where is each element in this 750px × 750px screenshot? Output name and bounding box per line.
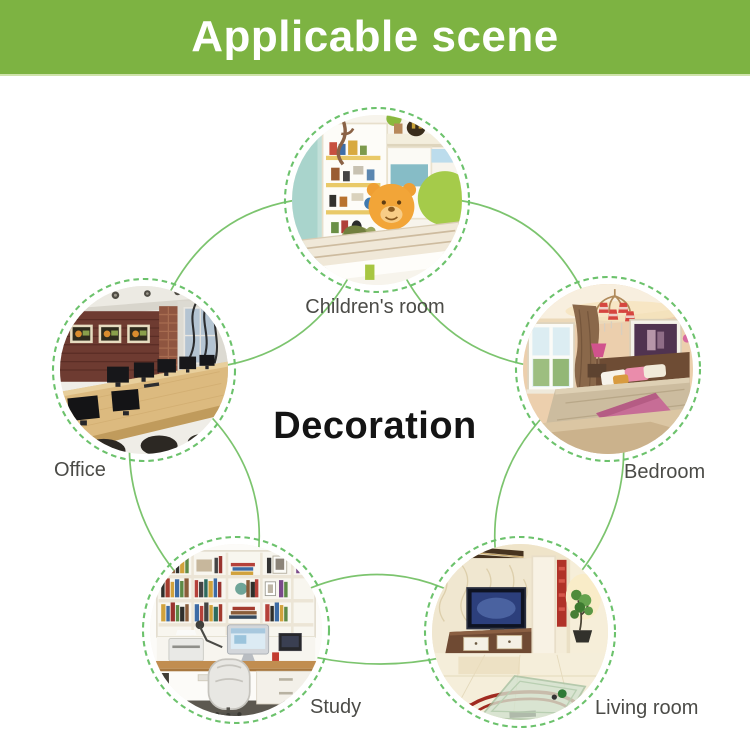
living-room-illustration (432, 544, 608, 720)
bedroom-illustration (523, 284, 693, 454)
childrens-room-photo (292, 115, 462, 285)
applicable-scene-page: Applicable scene (0, 0, 750, 750)
center-title: Decoration (273, 405, 476, 448)
study-photo (150, 544, 322, 716)
bedroom-label: Bedroom (624, 461, 705, 484)
living-room-photo (432, 544, 608, 720)
living-room-label: Living room (595, 697, 698, 720)
study-label: Study (310, 696, 361, 719)
study-illustration (150, 544, 322, 716)
bedroom-photo (523, 284, 693, 454)
office-illustration (60, 286, 228, 454)
office-label: Office (54, 459, 106, 482)
office-photo (60, 286, 228, 454)
childrens-room-label: Children's room (305, 296, 444, 319)
childrens-room-illustration (292, 115, 462, 285)
